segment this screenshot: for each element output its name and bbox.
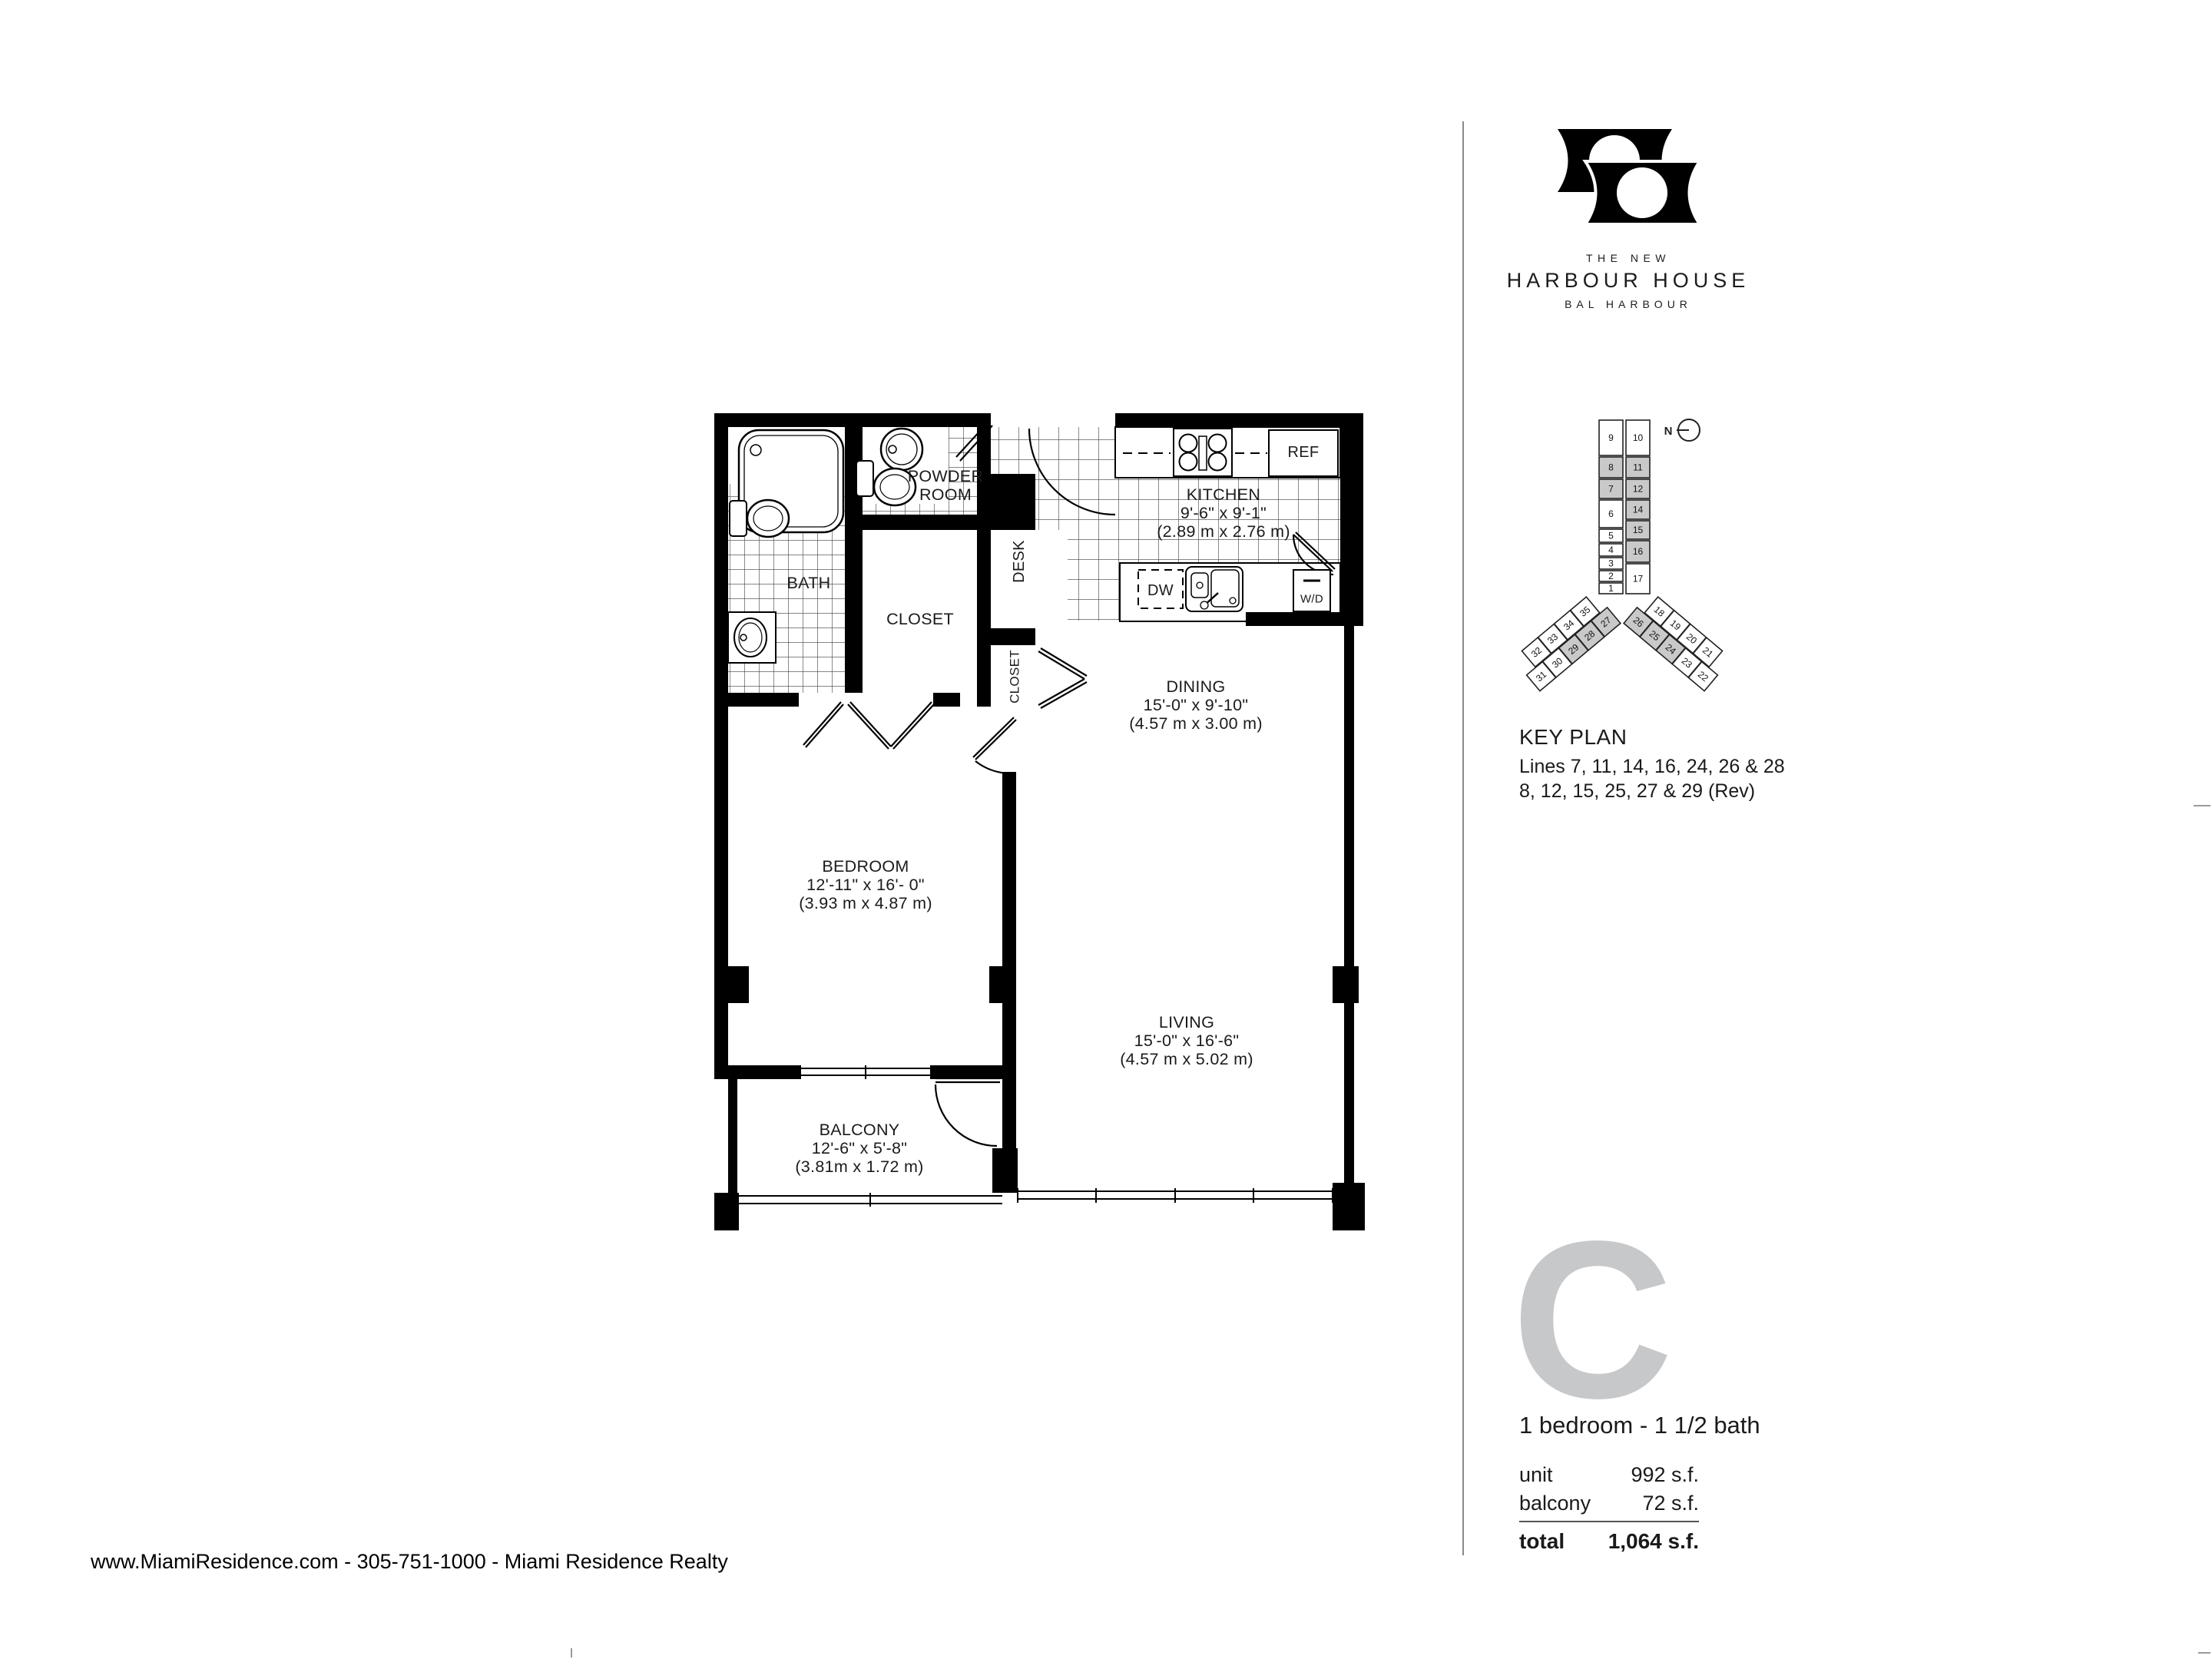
svg-text:7: 7 — [1608, 484, 1614, 495]
footer-contact: www.MiamiResidence.com - 305-751-1000 - … — [91, 1550, 728, 1574]
living-label: LIVING 15'-0" x 16'-6" (4.57 m x 5.02 m) — [1120, 1013, 1253, 1068]
brand-name: HARBOUR HOUSE — [1482, 269, 1774, 293]
svg-text:9: 9 — [1608, 432, 1614, 443]
unit-area-value: 992 s.f. — [1631, 1461, 1699, 1489]
svg-text:8: 8 — [1608, 462, 1614, 473]
svg-text:12: 12 — [1633, 484, 1644, 495]
north-compass-icon: N — [1664, 419, 1700, 441]
kitchen-sink-icon — [1186, 567, 1243, 611]
unit-type: 1 bedroom - 1 1/2 bath — [1519, 1412, 1760, 1439]
unit-letter: C — [1512, 1207, 1674, 1432]
flyer-sheet: 9876543211011121415161735343332272829303… — [0, 0, 2212, 1659]
svg-text:2: 2 — [1608, 571, 1614, 581]
svg-text:4: 4 — [1608, 545, 1614, 555]
dining-label: DINING 15'-0" x 9'-10" (4.57 m x 3.00 m) — [1129, 677, 1263, 733]
powder-room-label: POWDER ROOM — [908, 467, 984, 504]
brand-line-sub: BAL HARBOUR — [1482, 298, 1774, 310]
balcony-label: BALCONY 12'-6" x 5'-8" (3.81m x 1.72 m) — [795, 1121, 923, 1176]
powder-sink-icon — [881, 429, 922, 470]
svg-text:11: 11 — [1633, 462, 1643, 473]
small-closet-label: CLOSET — [1008, 650, 1022, 704]
sheet-canvas: 9876543211011121415161735343332272829303… — [0, 0, 2212, 1659]
keyplan-diagram: 9876543211011121415161735343332272829303… — [1522, 420, 1722, 691]
balcony-area-value: 72 s.f. — [1642, 1489, 1699, 1518]
bath-toilet-icon — [730, 500, 789, 537]
svg-text:3: 3 — [1608, 558, 1614, 569]
stove-icon — [1174, 429, 1232, 476]
closet-label: CLOSET — [886, 610, 954, 628]
harbour-house-logo-icon — [1558, 129, 1700, 224]
bath-label: BATH — [787, 574, 831, 592]
brand-line-top: THE NEW — [1482, 252, 1774, 264]
svg-text:14: 14 — [1633, 505, 1644, 515]
table-row-unit: unit 992 s.f. — [1519, 1461, 1699, 1489]
table-row-total: total 1,064 s.f. — [1519, 1527, 1699, 1555]
desk-label: DESK — [1011, 540, 1028, 583]
dishwasher-label: DW — [1147, 582, 1174, 599]
svg-text:17: 17 — [1633, 574, 1644, 584]
bedroom-label: BEDROOM 12'-11" x 16'- 0" (3.93 m x 4.87… — [799, 857, 932, 912]
kitchen-label: KITCHEN 9'-6" x 9'-1" (2.89 m x 2.76 m) — [1157, 485, 1290, 541]
svg-text:10: 10 — [1633, 432, 1644, 443]
unit-area-label: unit — [1519, 1461, 1553, 1489]
svg-text:16: 16 — [1633, 546, 1644, 557]
svg-text:1: 1 — [1608, 583, 1614, 594]
table-divider — [1519, 1521, 1699, 1522]
balcony-area-label: balcony — [1519, 1489, 1591, 1518]
north-label: N — [1664, 425, 1673, 438]
refrigerator-label: REF — [1288, 444, 1320, 461]
bath-sink-icon — [728, 612, 776, 663]
keyplan-lines-1: Lines 7, 11, 14, 16, 24, 26 & 28 — [1519, 756, 1785, 778]
total-area-value: 1,064 s.f. — [1608, 1527, 1699, 1555]
svg-text:5: 5 — [1608, 531, 1614, 541]
trim-marks — [571, 806, 2210, 1657]
table-row-balcony: balcony 72 s.f. — [1519, 1489, 1699, 1518]
keyplan-title: KEY PLAN — [1519, 725, 1627, 750]
svg-text:6: 6 — [1608, 508, 1614, 519]
washer-dryer-label: W/D — [1300, 593, 1323, 606]
area-table: unit 992 s.f. balcony 72 s.f. total 1,06… — [1519, 1461, 1699, 1555]
total-area-label: total — [1519, 1527, 1565, 1555]
svg-text:15: 15 — [1633, 525, 1644, 535]
keyplan-lines-2: 8, 12, 15, 25, 27 & 29 (Rev) — [1519, 780, 1755, 803]
